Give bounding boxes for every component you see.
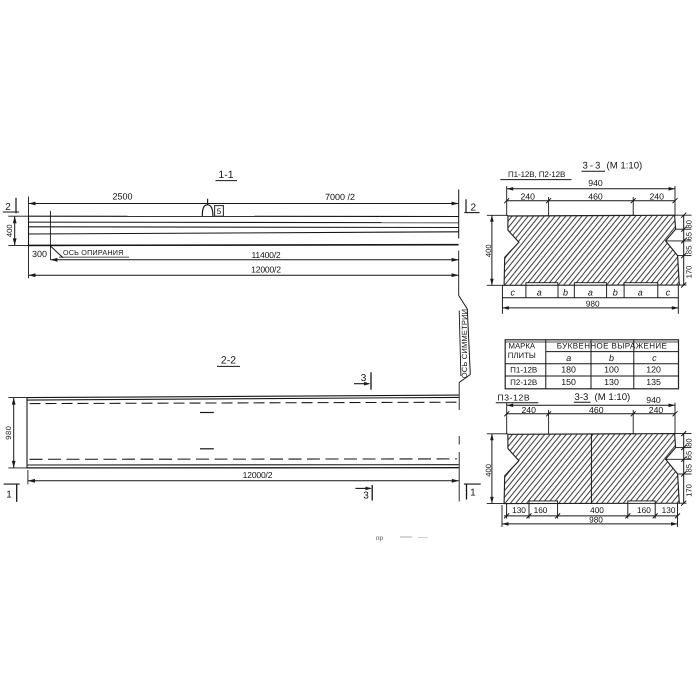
svg-text:a: a (588, 287, 593, 297)
svg-text:130: 130 (512, 505, 526, 515)
svg-text:65: 65 (685, 451, 694, 459)
svg-text:c: c (666, 287, 671, 297)
svg-text:b: b (613, 287, 618, 297)
svg-text:130: 130 (662, 505, 676, 515)
svg-text:П1-12В: П1-12В (510, 366, 537, 375)
svg-text:180: 180 (561, 365, 576, 375)
svg-text:5: 5 (217, 207, 222, 216)
svg-text:12000/2: 12000/2 (251, 264, 281, 274)
svg-text:170: 170 (685, 484, 694, 497)
svg-text:a: a (638, 287, 643, 297)
svg-text:240: 240 (649, 405, 664, 415)
svg-text:МАРКА: МАРКА (508, 342, 535, 351)
svg-text:980: 980 (4, 426, 13, 440)
svg-text:400: 400 (5, 224, 14, 237)
svg-text:2: 2 (5, 202, 11, 213)
svg-text:ПЛИТЫ: ПЛИТЫ (508, 351, 536, 360)
svg-text:3: 3 (363, 491, 369, 502)
svg-text:170: 170 (685, 266, 694, 279)
svg-text:a: a (537, 287, 542, 297)
svg-text:2: 2 (471, 203, 477, 214)
svg-text:П2-12В: П2-12В (510, 378, 537, 387)
svg-text:160: 160 (534, 505, 548, 515)
svg-text:БУКВЕННОЕ ВЫРАЖЕНИЕ: БУКВЕННОЕ ВЫРАЖЕНИЕ (557, 341, 668, 350)
svg-text:100: 100 (604, 365, 619, 375)
svg-text:(М 1:10): (М 1:10) (607, 161, 643, 172)
svg-text:3-3: 3-3 (575, 392, 589, 403)
svg-text:c: c (652, 353, 657, 363)
svg-text:П1-12В, П2-12В: П1-12В, П2-12В (508, 170, 565, 179)
svg-text:65: 65 (685, 232, 694, 240)
svg-text:1: 1 (470, 488, 476, 499)
svg-text:3: 3 (361, 373, 367, 384)
svg-text:130: 130 (604, 377, 619, 387)
svg-text:85: 85 (685, 246, 694, 254)
svg-text:460: 460 (588, 192, 603, 202)
svg-text:980: 980 (586, 298, 600, 308)
svg-text:240: 240 (521, 405, 536, 415)
svg-text:460: 460 (589, 405, 604, 415)
svg-text:980: 980 (589, 514, 603, 524)
svg-text:3-3: 3-3 (583, 161, 603, 172)
svg-text:240: 240 (649, 192, 664, 202)
svg-text:2500: 2500 (112, 192, 132, 202)
svg-text:11400/2: 11400/2 (251, 250, 280, 260)
svg-text:85: 85 (685, 464, 694, 472)
svg-text:1: 1 (6, 490, 12, 501)
svg-text:7000 /2: 7000 /2 (325, 192, 355, 202)
svg-text:пр: пр (376, 535, 384, 542)
svg-text:12000/2: 12000/2 (243, 470, 273, 480)
svg-text:П3-12В: П3-12В (498, 392, 531, 402)
svg-text:940: 940 (588, 178, 603, 188)
svg-text:2-2: 2-2 (221, 355, 236, 367)
svg-text:(М 1:10): (М 1:10) (595, 392, 631, 403)
svg-text:135: 135 (646, 377, 661, 387)
svg-text:400: 400 (484, 244, 493, 257)
svg-text:940: 940 (646, 395, 661, 405)
svg-text:c: c (510, 287, 515, 297)
svg-text:300: 300 (32, 249, 47, 259)
svg-text:ОСЬ ОПИРАНИЯ: ОСЬ ОПИРАНИЯ (63, 248, 123, 257)
svg-text:80: 80 (685, 220, 694, 228)
svg-text:80: 80 (685, 438, 694, 446)
svg-text:120: 120 (646, 365, 661, 375)
svg-text:160: 160 (637, 505, 651, 515)
svg-text:a: a (566, 353, 571, 363)
svg-text:b: b (563, 287, 568, 297)
svg-text:ОСЬ СИММЕТРИИ: ОСЬ СИММЕТРИИ (460, 309, 469, 379)
svg-text:400: 400 (484, 464, 493, 477)
svg-text:b: b (609, 353, 614, 363)
svg-text:1-1: 1-1 (218, 169, 233, 181)
svg-text:150: 150 (561, 377, 576, 387)
svg-text:240: 240 (520, 192, 535, 202)
